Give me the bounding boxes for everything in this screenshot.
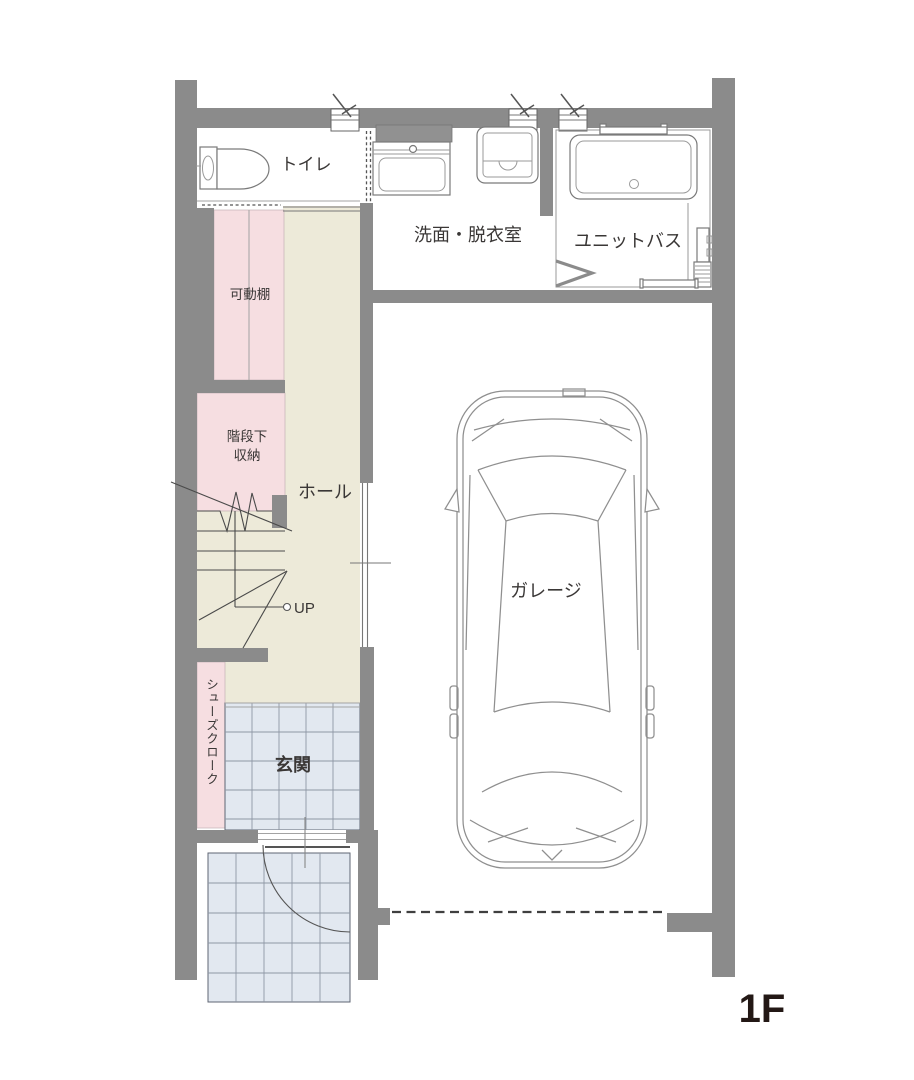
- up-marker-circle: [284, 604, 291, 611]
- shoe-closet-label: シューズクローク: [204, 678, 218, 786]
- floor-title: 1F: [739, 987, 786, 1031]
- car-mirror-left: [445, 489, 459, 512]
- bath-threshold: [640, 279, 698, 288]
- unit-bath-label: ユニットバス: [574, 231, 682, 251]
- window-symbol: [331, 94, 359, 131]
- garage-wall-notch: [667, 907, 673, 913]
- toilet-fixture: [196, 147, 269, 189]
- garage-label: ガレージ: [510, 581, 582, 601]
- vanity-sink: [373, 125, 452, 195]
- window-symbol: [509, 94, 537, 131]
- bathtub: [570, 135, 697, 199]
- window-symbol: [559, 94, 587, 131]
- under-stairs-storage-label-line1: 階段下: [227, 429, 268, 444]
- washing-machine-pan: [477, 127, 538, 183]
- toilet-label: トイレ: [281, 155, 332, 174]
- bath-folding-door: [556, 261, 592, 286]
- movable-shelf-label: 可動棚: [230, 287, 271, 302]
- car-mirror-right: [645, 489, 659, 512]
- hall-label: ホール: [298, 482, 352, 502]
- entrance-label: 玄関: [275, 754, 311, 775]
- floor-plan-page: トイレ 洗面・脱衣室 ユニットバス 可動棚 階段下 収納 ホール UP シューズ…: [0, 0, 914, 1080]
- car: [445, 389, 659, 868]
- stairs-up-label: UP: [294, 600, 315, 617]
- unit-bath-module: [556, 124, 712, 288]
- washroom-label: 洗面・脱衣室: [414, 225, 522, 245]
- porch-tile-floor: [208, 853, 350, 1002]
- floor-plan-1f: トイレ 洗面・脱衣室 ユニットバス 可動棚 階段下 収納 ホール UP シューズ…: [0, 0, 914, 1080]
- under-stairs-storage-label-line2: 収納: [234, 448, 261, 463]
